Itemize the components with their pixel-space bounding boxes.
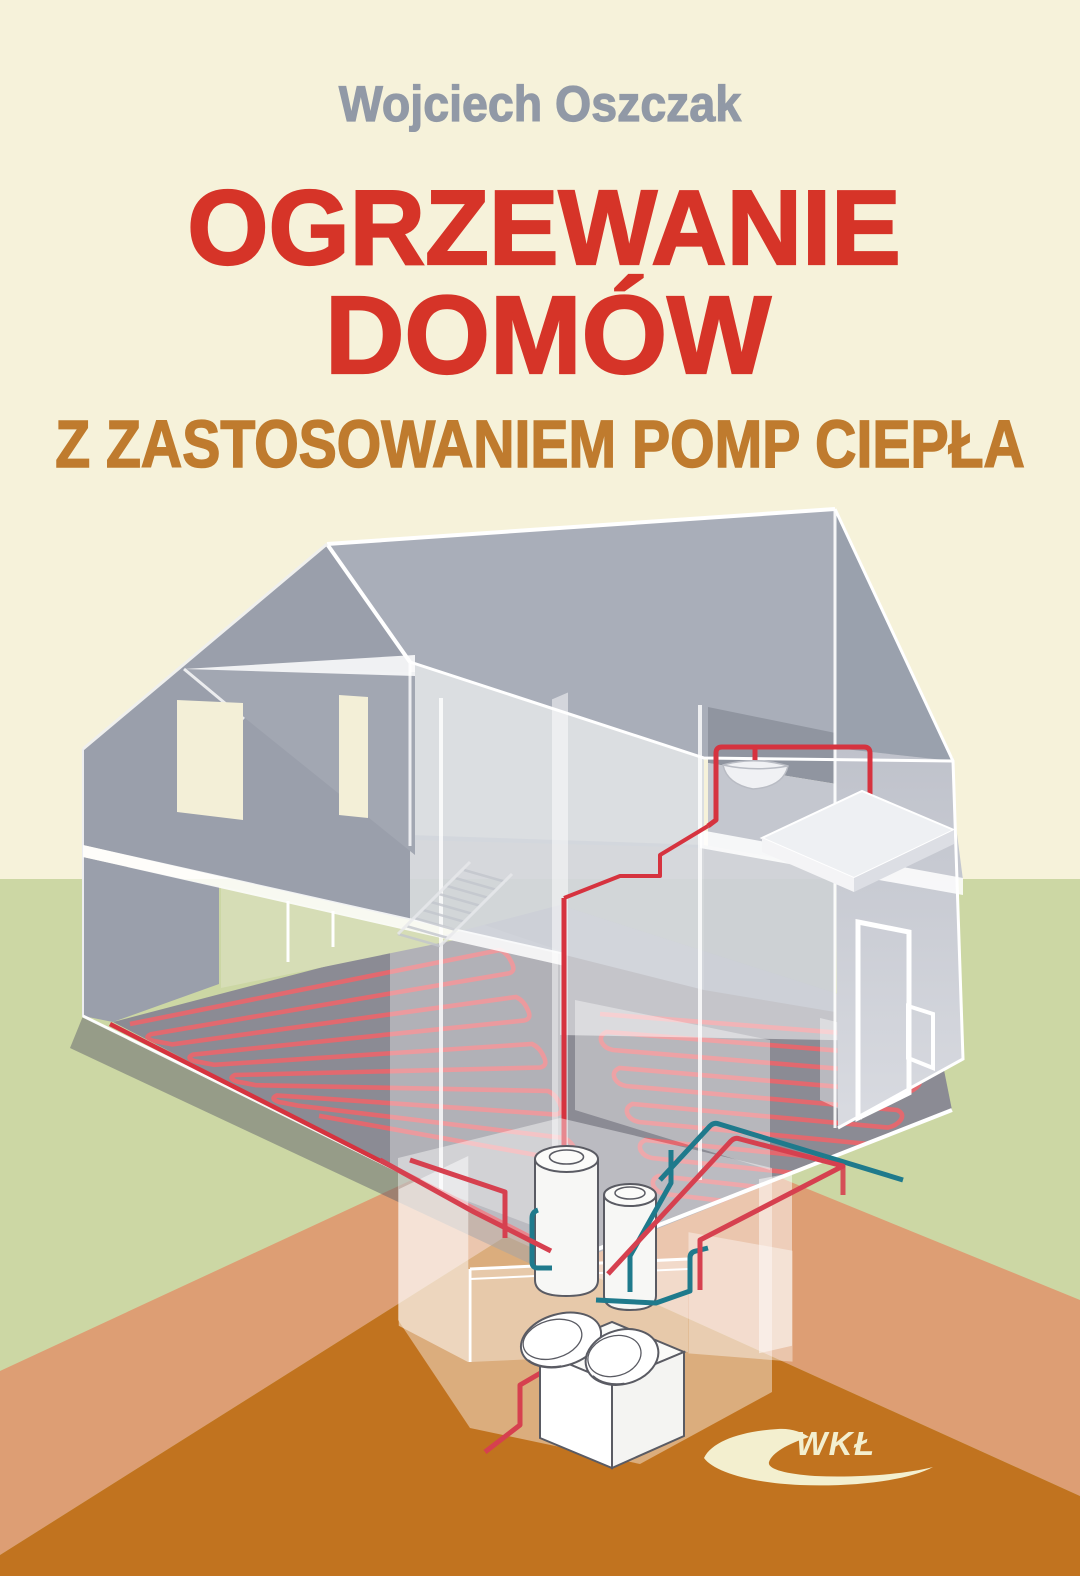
svg-text:WKŁ: WKŁ	[796, 1425, 876, 1462]
